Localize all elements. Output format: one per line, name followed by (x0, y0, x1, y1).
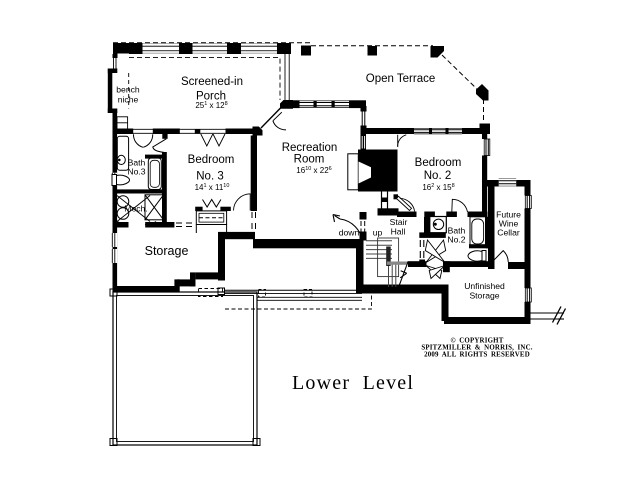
svg-text:Storage: Storage (469, 291, 499, 301)
svg-text:1610 x 226: 1610 x 226 (296, 166, 331, 175)
svg-text:Recreation: Recreation (282, 142, 338, 154)
svg-text:Hall: Hall (391, 227, 406, 237)
svg-text:Mech.: Mech. (124, 204, 147, 214)
svg-text:162 x 158: 162 x 158 (422, 183, 454, 192)
svg-text:down: down (339, 228, 360, 238)
svg-text:Storage: Storage (145, 244, 189, 258)
svg-text:bench: bench (116, 85, 140, 95)
svg-text:251 x 128: 251 x 128 (195, 101, 227, 110)
svg-text:No.3: No.3 (127, 167, 145, 177)
svg-text:No. 2: No. 2 (424, 170, 452, 182)
svg-text:niche: niche (118, 95, 139, 105)
svg-text:Room: Room (294, 154, 325, 166)
svg-text:No. 3: No. 3 (196, 171, 224, 183)
svg-text:Screened-in: Screened-in (181, 76, 243, 88)
svg-text:Bedroom: Bedroom (415, 157, 462, 169)
svg-text:Bedroom: Bedroom (188, 154, 235, 166)
svg-text:Lower Level: Lower Level (292, 372, 414, 394)
svg-text:Unfinished: Unfinished (464, 281, 505, 291)
svg-text:up: up (373, 228, 383, 238)
svg-text:Cellar: Cellar (497, 228, 520, 238)
svg-text:No.2: No.2 (447, 235, 465, 245)
svg-text:Open Terrace: Open Terrace (366, 73, 435, 85)
svg-text:Stair: Stair (390, 217, 408, 227)
svg-text:2009 ALL RIGHTS RESERVED: 2009 ALL RIGHTS RESERVED (424, 351, 530, 358)
